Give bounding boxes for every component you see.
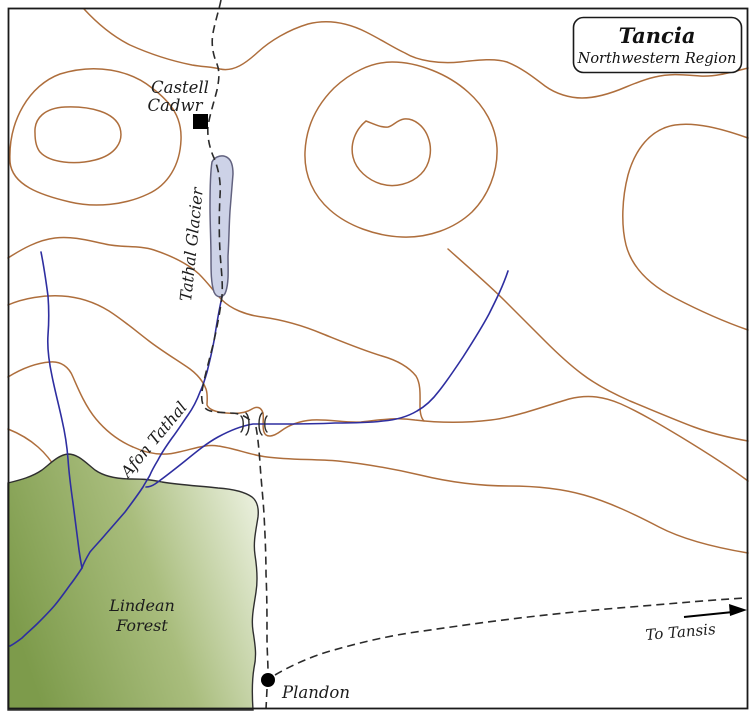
forest-region <box>8 454 258 710</box>
route-label: To Tansis <box>645 620 717 644</box>
forest-label-line2: Forest <box>115 616 168 635</box>
roads <box>202 0 745 709</box>
contour-line <box>448 249 748 441</box>
contour-line <box>352 119 430 186</box>
map-page: Castell Cadwr Tathal Glacier Afon Tathal… <box>0 0 756 718</box>
map-canvas: Castell Cadwr Tathal Glacier Afon Tathal… <box>0 0 756 718</box>
road-south-to-plandon <box>256 427 268 672</box>
arrow-icon <box>684 604 747 617</box>
castle-label-line1: Castell <box>151 78 209 97</box>
castle-label-line2: Cadwr <box>147 96 203 115</box>
bridge-flare <box>246 413 249 435</box>
glacier-label: Tathal Glacier <box>176 185 207 302</box>
map-subtitle: Northwestern Region <box>577 51 737 67</box>
contour-line <box>623 124 748 330</box>
title-box: Tancia Northwestern Region <box>574 18 742 73</box>
road-below-plandon <box>266 689 267 709</box>
town-marker <box>261 673 275 687</box>
bridge-flare <box>241 416 243 432</box>
map-title: Tancia <box>619 23 696 48</box>
contour-line <box>8 296 748 481</box>
contour-line <box>35 107 121 163</box>
forest-label-line1: Lindean <box>108 596 175 615</box>
contour-line <box>305 62 497 237</box>
town-label: Plandon <box>281 683 350 702</box>
castle-marker <box>193 114 208 129</box>
